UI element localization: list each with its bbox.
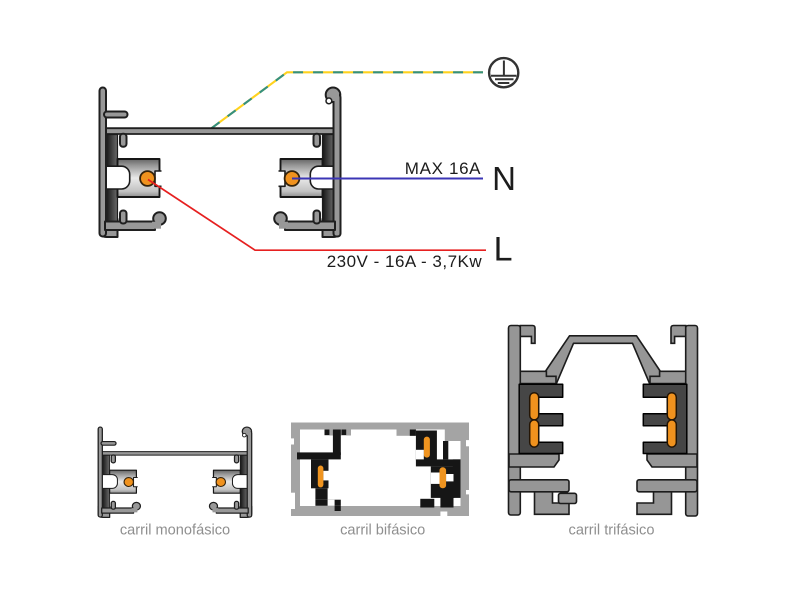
svg-text:carril monofásico: carril monofásico (120, 523, 230, 539)
svg-text:carril trifásico: carril trifásico (569, 523, 655, 539)
svg-text:230V - 16A - 3,7Kw: 230V - 16A - 3,7Kw (327, 252, 483, 271)
svg-text:N: N (492, 160, 516, 197)
svg-text:MAX 16A: MAX 16A (405, 159, 481, 178)
svg-text:L: L (494, 230, 513, 268)
svg-text:carril bifásico: carril bifásico (340, 523, 425, 539)
